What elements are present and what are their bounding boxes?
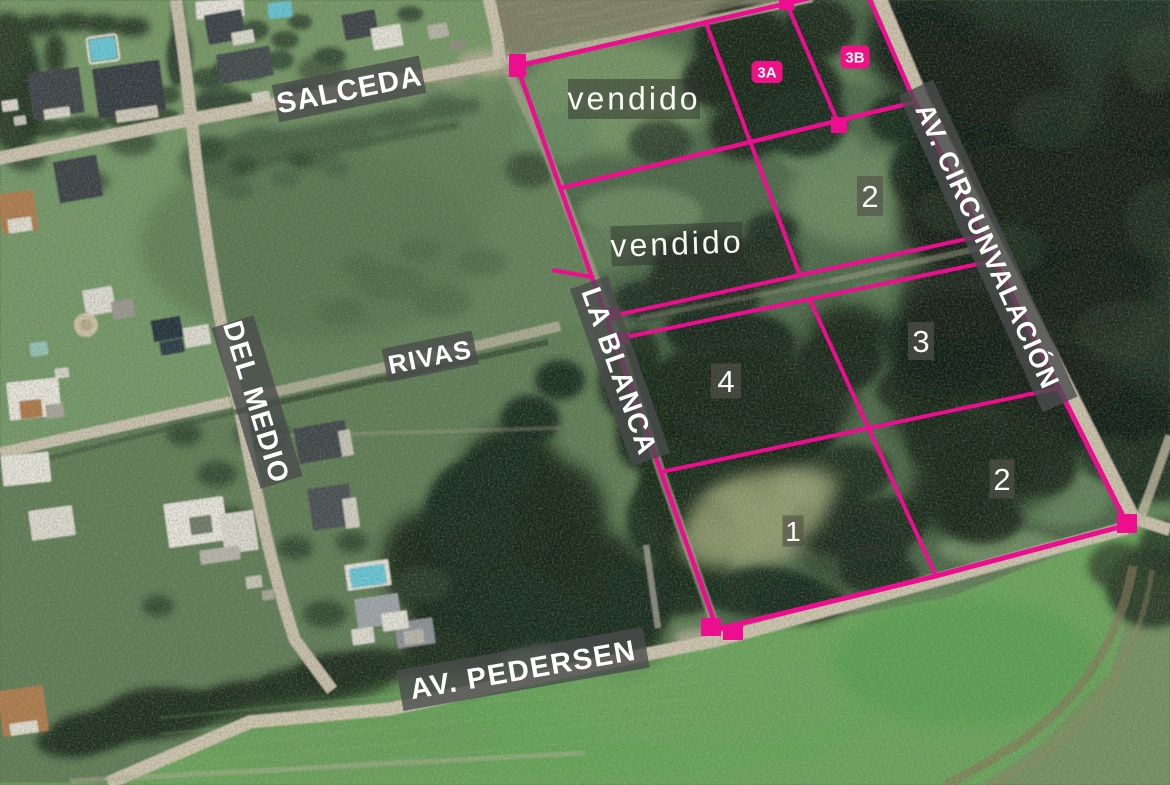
svg-text:3A: 3A <box>757 64 776 81</box>
svg-text:2: 2 <box>993 462 1010 497</box>
svg-text:3B: 3B <box>845 49 864 66</box>
svg-text:vendido: vendido <box>567 81 700 117</box>
svg-text:3: 3 <box>912 324 929 359</box>
svg-text:vendido: vendido <box>610 223 744 264</box>
svg-text:4: 4 <box>717 364 734 399</box>
svg-text:2: 2 <box>861 179 878 214</box>
svg-text:1: 1 <box>785 516 801 547</box>
